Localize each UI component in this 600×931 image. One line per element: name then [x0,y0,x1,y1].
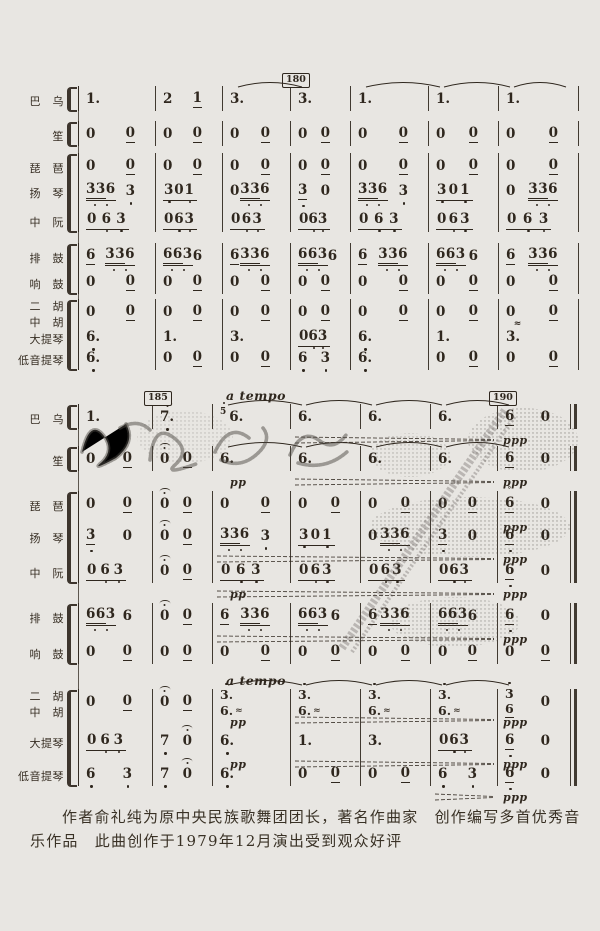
measure: 60 [497,448,570,472]
octave-mark [303,546,305,548]
measure: 00 [78,493,152,517]
octave-mark [373,683,375,685]
note-token: 0 [86,498,95,512]
note-token: 66 [298,246,318,264]
note-token: 7 [160,735,169,749]
dynamic-ppp: ppp [503,716,528,729]
note-token: 3 [460,564,469,578]
note-token: 7. [160,411,174,425]
measure: 00 [152,605,212,629]
octave-dots [361,204,385,206]
measure: 6336 [212,605,290,629]
note-token: 0 [163,160,172,174]
note-token: 3 [437,184,446,198]
dynamic-pp: pp [230,716,246,729]
slurred-note-group: 063 [298,330,330,347]
note-token: 6 [358,249,367,265]
octave-mark [464,230,466,232]
instrument-group-bracket [67,405,77,430]
measure: 63 [430,763,497,787]
octave-mark [255,581,257,583]
note-token: 6 [308,213,317,227]
measure: 00 [290,641,360,665]
note-token: 0 [261,645,270,661]
note-token: 3 [392,564,401,578]
note-token: 6 [230,249,239,265]
note-token: 0 [436,352,445,366]
note-token: 0 [183,695,192,711]
note-token: 0 [160,498,169,512]
note-token: 0 [231,213,240,227]
fermata-icon [159,600,170,607]
note-token: 0 [160,646,169,660]
note-token: 33 [220,526,240,544]
measure: 3363 [212,525,290,549]
note-token: 0 [261,159,270,175]
octave-mark [453,581,455,583]
measure: 21 [155,88,222,112]
note-token: 0 [468,497,477,513]
note-token: 0 [298,306,307,320]
note-token: 0 [541,735,550,749]
note-token: 0 [160,530,169,544]
note-token: 0 [311,529,320,543]
note-token: 33 [380,606,400,624]
note-token: 6 [449,734,458,748]
final-barline [574,689,577,786]
note-token: 6° [505,497,514,513]
dynamic-pp: pp [230,588,246,601]
measure: 00 [212,641,290,665]
note-token: 6 [469,250,478,264]
note-token: 33 [240,181,260,199]
measure: 6336 [498,245,578,269]
octave-mark [90,785,92,787]
fermata-icon [159,443,170,450]
measure: 3. [290,88,350,112]
note-token: 0 [506,306,515,320]
note-token: 3 [299,529,308,543]
note-token: 0 [123,452,132,468]
tie-arc [306,443,372,448]
note-token: 6 [506,249,515,265]
instrument-group-bracket [67,604,77,665]
measure: 00 [78,448,152,472]
note-token: 6 [468,610,477,624]
note-token: 6 [102,213,111,227]
measure: 30 [430,525,497,549]
instrument-label: 二 胡 [4,298,64,314]
measure: 00 [498,347,578,371]
barline [570,491,571,583]
note-token: 3 [298,184,307,200]
note-token: 0 [399,305,408,321]
diminuendo-line [217,556,494,559]
note-token: 33 [240,606,260,624]
dynamic-ppp: ppp [503,476,528,489]
octave-mark [393,230,395,232]
note-token: 1 [193,92,202,108]
octave-mark [442,785,444,787]
octave-mark [442,550,444,552]
note-token: 0 [368,646,377,660]
note-token: 0 [163,128,172,142]
instrument-label: 扬 琴 [4,530,64,546]
measure: 00 [152,525,212,549]
note-token: 66 [436,246,456,264]
measure: 7. [152,406,212,430]
note-token: 6. [438,411,452,425]
measure: 3. [360,730,430,754]
slurred-note-group: 301 [298,529,335,546]
note-token: 0 [438,498,447,512]
dynamic-ppp: ppp [503,521,528,534]
note-token: 0 [220,646,229,660]
octave-mark [105,581,107,583]
note-token: 0 [541,696,550,710]
octave-mark [265,547,267,549]
note-token: 0 [468,530,477,544]
note-token: 6 [438,768,447,782]
slurred-note-group: 063 [506,213,551,230]
slurred-note-group: 063 [436,213,473,230]
note-token: 0 [183,645,192,661]
measure: 6. [78,347,155,371]
note-token: 0 [86,453,95,467]
beamed-note-group: 663 [163,248,193,266]
measure: 60 [497,605,570,629]
note-token: 0 [126,127,135,143]
tie-arc [514,83,566,88]
beamed-note-group: 336 [105,248,135,266]
rehearsal-mark-180: 180 [282,73,310,88]
note-token: 0 [549,351,558,367]
octave-dots [531,204,555,206]
measure: 6636 [155,245,222,269]
slurred-note-group: 063 [438,734,472,751]
measure: 00 [430,493,497,517]
note-token: 0 [261,127,270,143]
note-token: 6.≈ [298,705,321,718]
instrument-label: 中 胡 [4,314,64,330]
beamed-note-group: 336 [240,183,270,201]
measure: 30 [78,525,152,549]
note-token: 3 [185,213,194,227]
diminuendo-line [295,479,494,482]
instrument-label: 二 胡 [4,688,64,704]
note-token: 3. [368,735,382,749]
beamed-note-group: 336 [380,608,410,626]
measure: 063 [222,209,290,233]
octave-mark [189,230,191,232]
tempo-text: a tempo [226,673,286,688]
note-token: 0 [123,530,132,544]
note-token: 0 [541,453,550,467]
note-token: 0 [123,645,132,661]
octave-mark [509,550,511,552]
note-token: 0 [358,160,367,174]
instrument-label: 响 鼓 [4,646,64,662]
octave-mark [164,785,166,787]
measure: 063 [78,730,152,754]
note-token: 0 [86,306,95,320]
measure: 6. [290,406,360,430]
note-token: 6. [368,411,382,425]
note-token: 3 [468,768,477,782]
note-token: 0 [469,305,478,321]
beamed-note-group: 663 [298,608,328,626]
note-token: 6 [505,564,514,580]
measure: 00 [430,641,497,665]
note-token: 3 [86,529,95,545]
slurred-note-group: 063 [298,213,330,230]
note-token: 1. [163,331,177,345]
note-token: 3 [460,213,469,227]
measure: 00 [152,448,212,472]
note-token: 0 [193,127,202,143]
instrument-label: 扬 琴 [4,185,64,201]
beamed-note-group: 663 [86,608,116,626]
octave-mark [326,546,328,548]
note-token: 0 [358,306,367,320]
note-token: 0 [163,276,172,290]
octave-mark [164,752,166,754]
measure: 00 [428,301,498,325]
beamed-note-group: 336 [240,248,270,266]
note-token: 3 [460,734,469,748]
measure: 1. [428,88,498,112]
measure: 00 [155,155,222,179]
note-token: 0 [183,768,192,782]
final-barline [574,603,577,664]
note-token: 0 [331,497,340,513]
note-token: 3 [164,184,173,198]
note-token: 0 [321,185,330,199]
measure: 6. [212,448,290,472]
instrument-group-bracket [67,122,77,147]
note-token: 0 [469,127,478,143]
measure: 00 [78,123,155,147]
tie-arc [376,443,442,448]
note-token: 0 [436,306,445,320]
tie-arc [446,681,509,686]
note-token: 3 [539,213,548,227]
instrument-label: 巴 乌 [4,93,64,109]
note-token: 0 [401,645,410,661]
barline [570,689,571,786]
instrument-label: 中 阮 [4,214,64,230]
measure: 3.6.≈ [212,691,290,715]
note-token: 0 [193,305,202,321]
beamed-note-group: 663 [438,608,468,626]
beamed-note-group: 336 [528,183,558,201]
note-token: 6 [100,564,109,578]
slurred-note-group: 063 [358,213,402,230]
fermata-icon [159,520,170,527]
note-token: 0 [123,695,132,711]
note-token: 0 [193,275,202,291]
note-token: 6 [193,250,202,264]
note-token: 66 [163,246,183,264]
measure: 00 [428,155,498,179]
measure: 00 [290,271,350,295]
note-token: 33 [380,526,400,544]
note-token: 1. [86,93,100,107]
note-token: 6 [308,330,317,344]
instrument-label: 巴 乌 [4,411,64,427]
note-token: 0 [541,565,550,579]
diminuendo-line [295,717,494,720]
note-token: 0 [86,160,95,174]
note-token: 0 [163,352,172,366]
dynamic-ppp: ppp [503,553,528,566]
octave-mark [302,369,304,371]
octave-mark [303,683,305,685]
octave-mark [105,751,107,753]
note-token: 0 [541,645,550,661]
measure: 00 [78,271,155,295]
note-token: 0 [163,306,172,320]
instrument-label: 排 鼓 [4,610,64,626]
note-token: 1. [86,411,100,425]
note-token: 0 [86,276,95,290]
beamed-note-group: 336 [358,183,388,201]
tie-arc [306,401,372,406]
instrument-label: 笙 [4,453,64,469]
measure: 00 [428,123,498,147]
note-token: 0 [321,275,330,291]
score-page: 巴 乌1.213.3.1.1.1.笙00000000000000琵 琶00000… [0,0,600,931]
note-token: 0 [436,160,445,174]
measure: 00 [155,301,222,325]
octave-mark [223,402,225,404]
measure: 063 [155,209,222,233]
note-token: 6 [374,213,383,227]
note-token: 0 [126,159,135,175]
note-token: 0 [230,128,239,142]
note-token: 0 [126,305,135,321]
note-token: 3 [116,213,125,227]
dynamic-ppp: ppp [503,588,528,601]
note-token: 6 [123,610,132,624]
dynamic-ppp: ppp [503,758,528,771]
note-token: 1 [322,529,331,543]
measure: 6636 [290,605,360,629]
measure: 00 [360,493,430,517]
note-token: 2 [163,93,172,107]
measure: 6636 [430,605,497,629]
note-token: 6. [298,453,312,467]
measure: 00 [498,155,578,179]
note-token: 0 [230,276,239,290]
note-token: 1. [436,331,450,345]
octave-mark [509,755,511,757]
octave-mark: ≈ [514,320,521,329]
note-token: 6 [86,249,95,265]
note-token: 0 [368,530,377,544]
instrument-label: 琵 琶 [4,160,64,176]
fermata-icon [159,686,170,693]
octave-dots [383,629,407,631]
octave-mark [325,369,327,371]
note-token: 0 [439,734,448,748]
note-token: 0 [221,564,230,578]
instrument-group-bracket [67,690,77,787]
measure: 6. [212,763,290,787]
octave-dots [441,629,465,631]
tie-arc [444,83,510,88]
measure: 00 [290,123,350,147]
note-token: 0 [506,185,515,199]
note-token: 6 [100,734,109,748]
octave-mark [453,751,455,753]
measure: 063 [428,209,498,233]
instrument-group-bracket [67,87,77,112]
measure: 360 [497,691,570,715]
note-token: 0 [469,275,478,291]
barline [570,603,571,664]
instrument-group-bracket [67,244,77,295]
note-token: 0 [468,645,477,661]
note-token: 6 [523,213,532,227]
note-token: 33 [240,246,260,264]
octave-mark [106,230,108,232]
note-token: 3 [389,213,398,227]
note-token: 0 [359,213,368,227]
slurred-note-group: 063 [438,564,472,581]
measure: 6. [350,347,428,371]
measure: 063 [290,209,350,233]
measure: 00 [155,271,222,295]
measure: 6. [360,406,430,430]
measure: 6636 [78,605,152,629]
octave-mark [326,581,328,583]
note-token: 0 [505,646,514,660]
note-token: 6. [220,453,234,467]
measure: 00 [155,347,222,371]
note-token: 3 [126,185,135,199]
note-token: 0 [331,645,340,661]
measure: 0336 [360,525,430,549]
measure: 3.6.≈ [290,691,360,715]
note-token: 3. [298,689,311,702]
octave-dots [301,629,325,631]
note-token: 0 [261,351,270,367]
octave-mark [92,369,94,371]
slurred-note-group: 063 [86,564,126,581]
measure: 00 [350,271,428,295]
note-token: 6 [505,410,514,426]
diminuendo-line [295,721,494,724]
measure: 6. [430,406,497,430]
octave-mark [90,550,92,552]
note-token: 3 [321,352,330,366]
note-token: 0 [541,768,550,782]
measure: 1. [498,88,578,112]
measure: 60 [497,730,570,754]
beamed-note-group: 336 [240,608,270,626]
measure: 00 [290,763,360,787]
measure: 00 [152,691,212,715]
measure: 1. [350,88,428,112]
octave-mark [453,230,455,232]
octave-mark [403,202,405,204]
diminuendo-line [295,483,494,486]
octave-mark [130,202,132,204]
measure: 00 [350,155,428,179]
measure: 70 [152,730,212,754]
instrument-label: 大提琴 [4,735,64,751]
